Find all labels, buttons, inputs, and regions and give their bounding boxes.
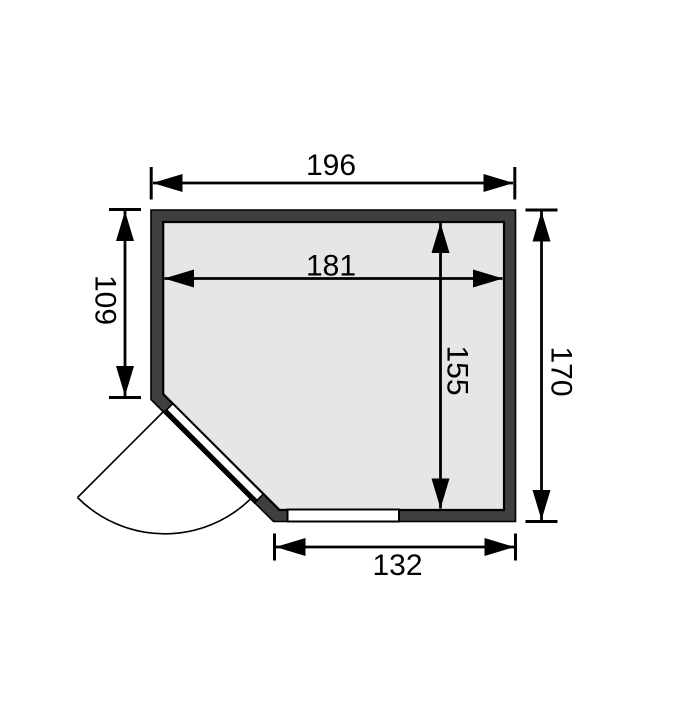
svg-text:155: 155 xyxy=(441,345,474,395)
svg-text:170: 170 xyxy=(545,346,578,396)
svg-text:109: 109 xyxy=(89,275,122,325)
svg-text:196: 196 xyxy=(306,149,356,182)
svg-text:181: 181 xyxy=(306,250,356,283)
svg-text:132: 132 xyxy=(372,549,422,582)
